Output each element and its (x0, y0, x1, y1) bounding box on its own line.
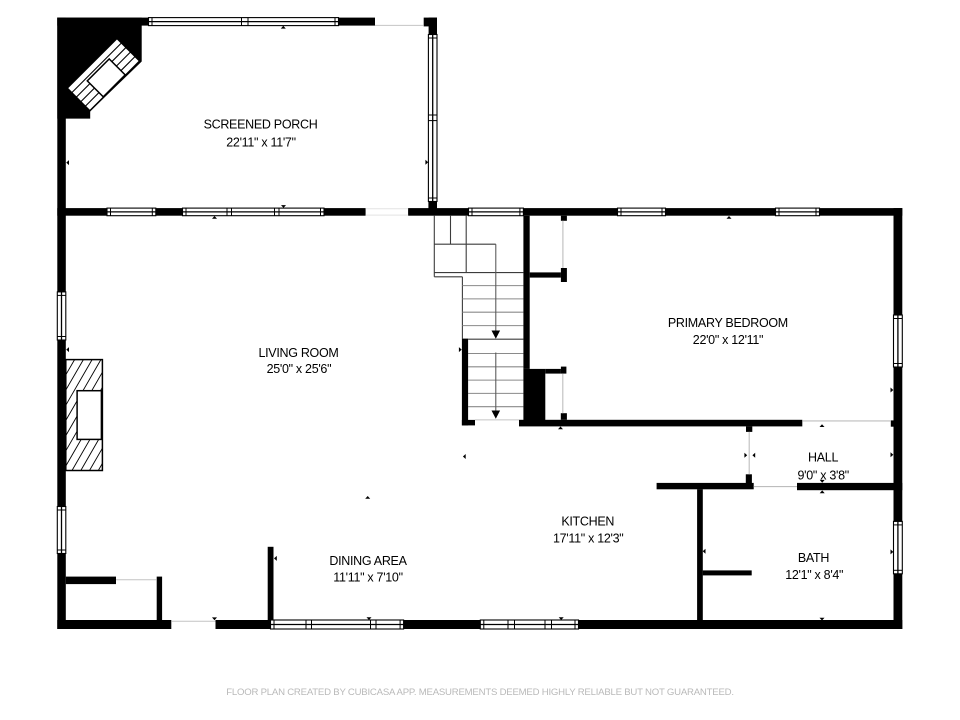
svg-text:12'1" x 8'4": 12'1" x 8'4" (785, 568, 843, 582)
svg-text:22'0" x 12'11": 22'0" x 12'11" (693, 333, 763, 347)
svg-text:11'11" x 7'10": 11'11" x 7'10" (333, 571, 402, 585)
svg-text:PRIMARY BEDROOM: PRIMARY BEDROOM (668, 316, 788, 330)
svg-text:9'0" x 3'8": 9'0" x 3'8" (798, 468, 849, 482)
svg-text:KITCHEN: KITCHEN (561, 514, 614, 528)
svg-text:BATH: BATH (798, 551, 829, 565)
svg-text:25'0" x 25'6": 25'0" x 25'6" (267, 362, 332, 376)
svg-text:17'11" x 12'3": 17'11" x 12'3" (553, 531, 623, 545)
svg-text:LIVING ROOM: LIVING ROOM (258, 346, 338, 360)
svg-text:DINING AREA: DINING AREA (329, 554, 407, 568)
svg-text:SCREENED PORCH: SCREENED PORCH (204, 118, 318, 132)
svg-text:HALL: HALL (808, 450, 838, 464)
svg-text:FLOOR PLAN CREATED BY CUBICASA: FLOOR PLAN CREATED BY CUBICASA APP. MEAS… (226, 687, 734, 698)
svg-text:22'11" x 11'7": 22'11" x 11'7" (226, 135, 295, 149)
